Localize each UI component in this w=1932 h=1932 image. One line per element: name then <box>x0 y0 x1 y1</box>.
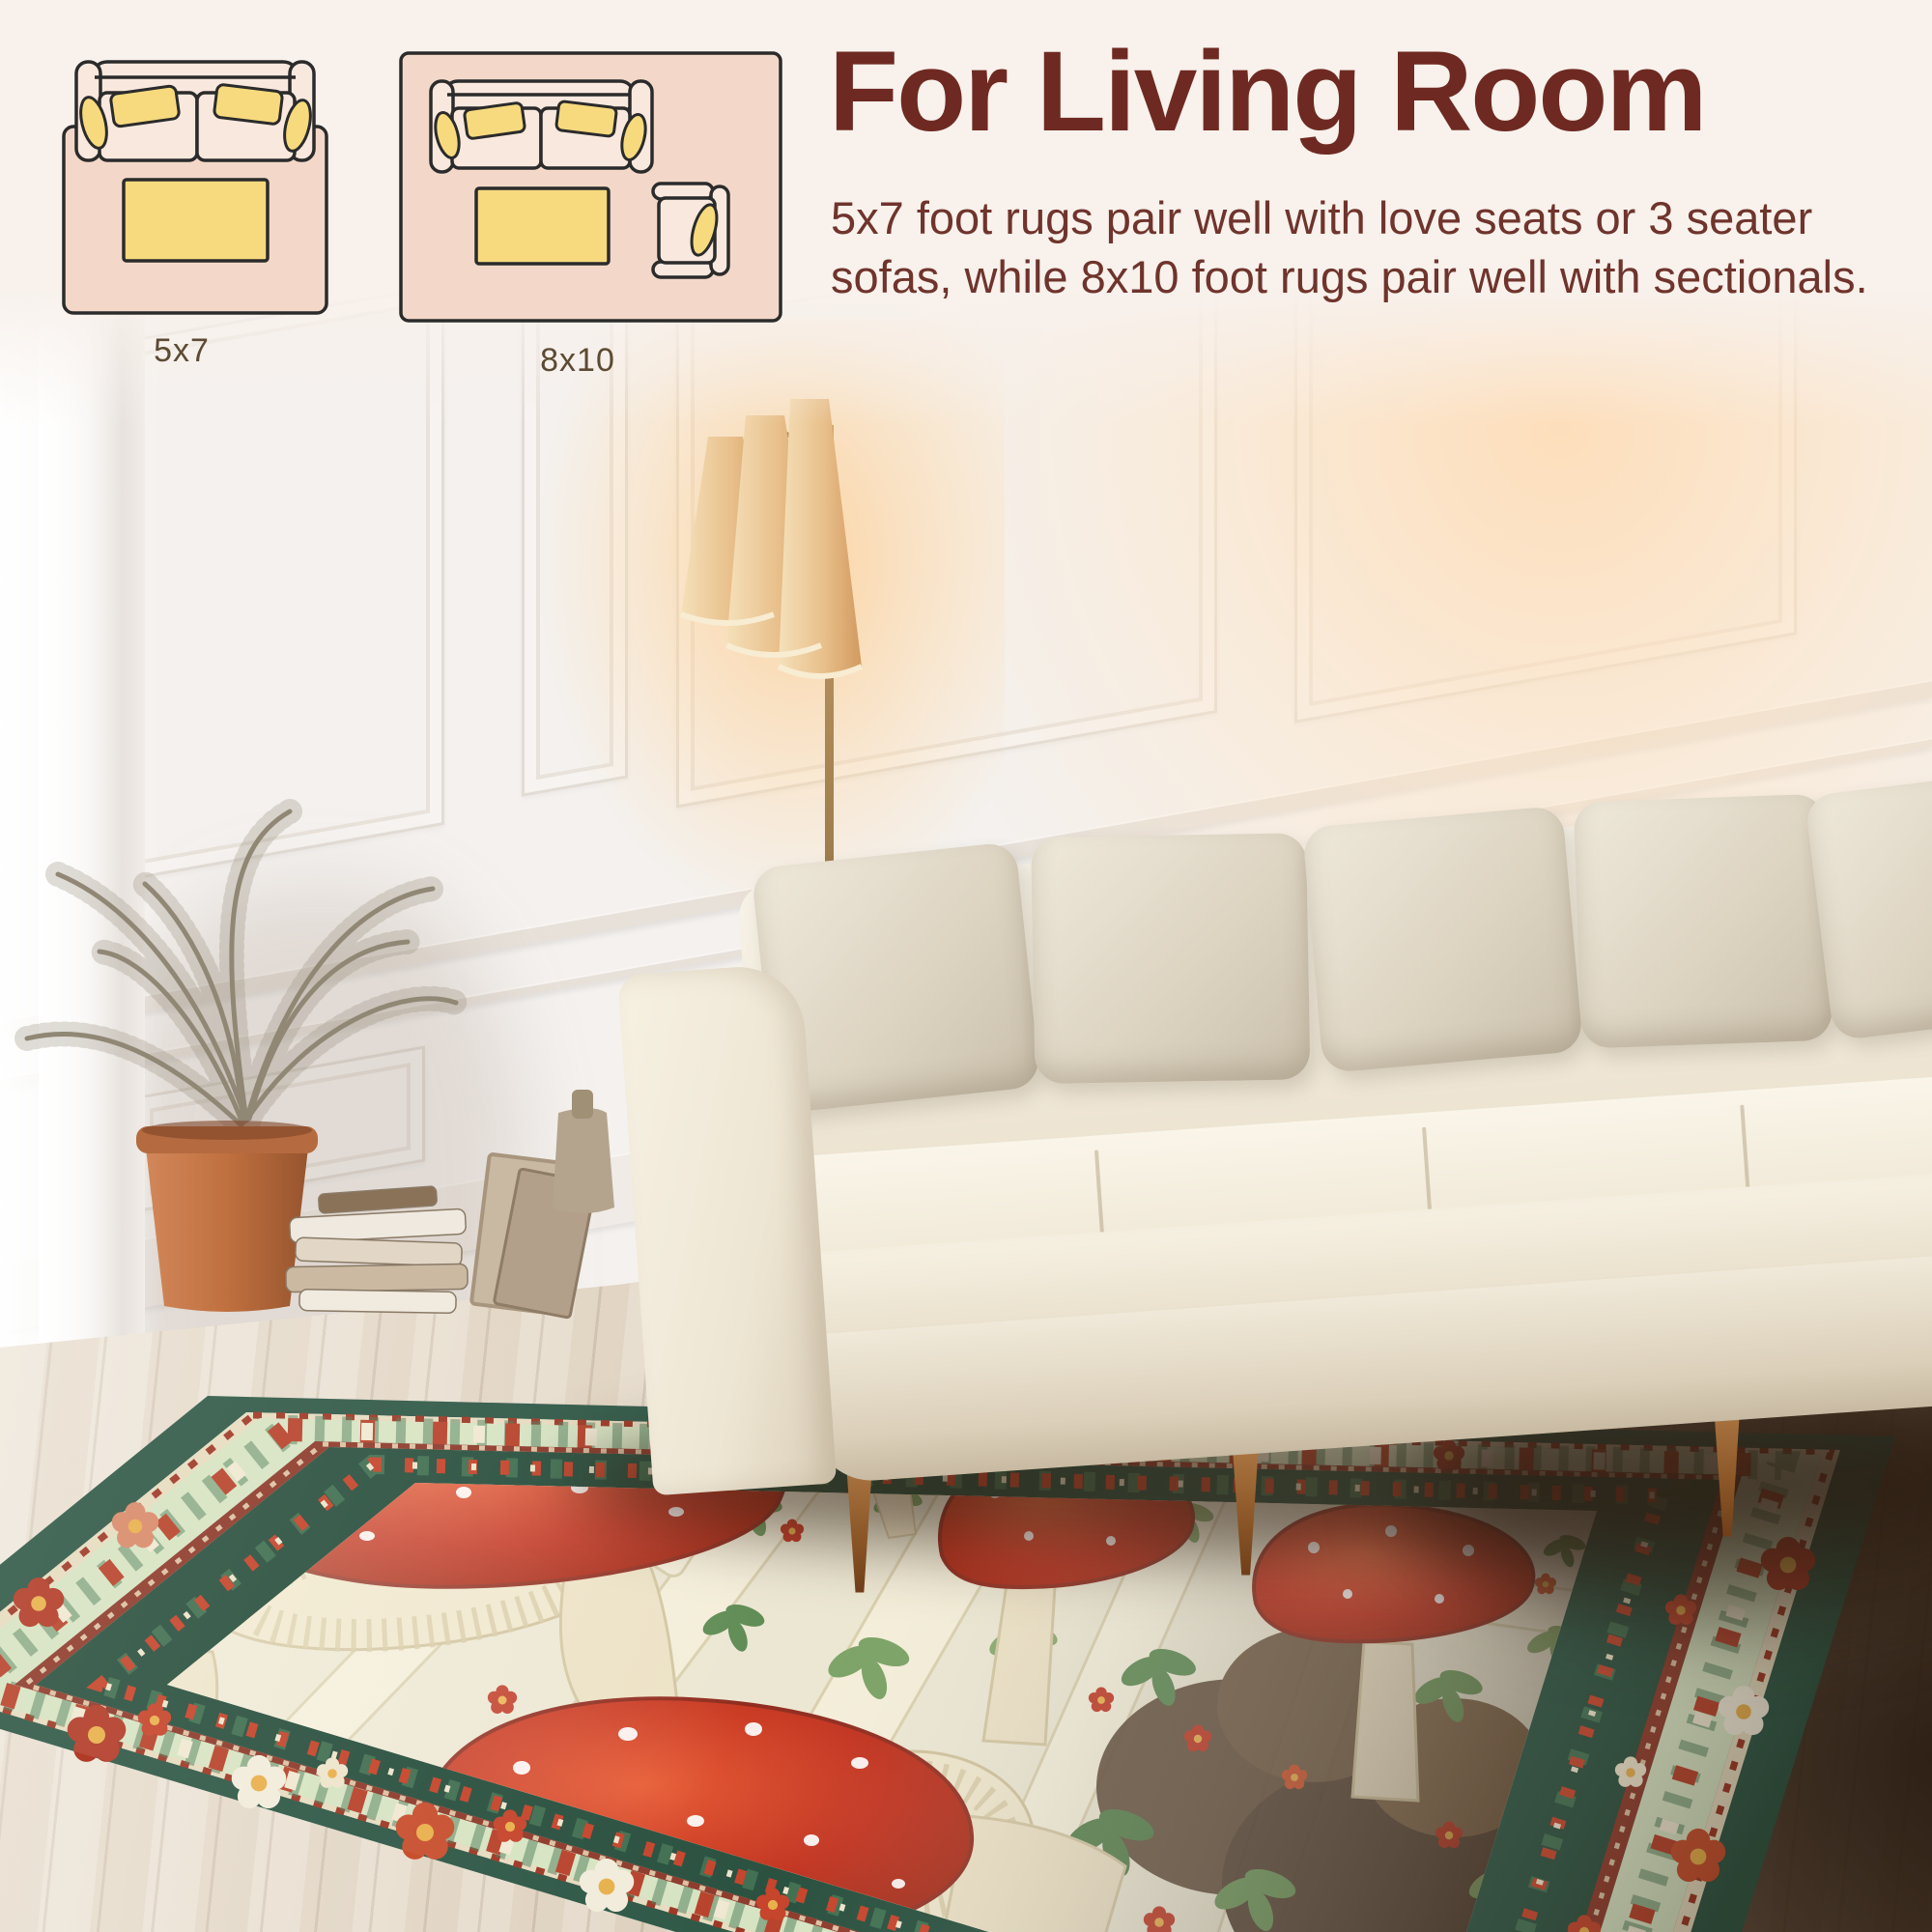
sofa-pillow <box>1574 794 1833 1049</box>
sofa-leg <box>840 1463 879 1593</box>
size-guide-description: 5x7 foot rugs pair well with love seats … <box>831 189 1918 306</box>
sofa-leg <box>1226 1445 1264 1576</box>
armchair-icon <box>653 184 728 277</box>
sofa-leg <box>1708 1406 1747 1537</box>
size-label-5x7: 5x7 <box>114 332 249 370</box>
white-sofa <box>609 752 1932 1650</box>
layout-diagram-5x7 <box>64 62 327 313</box>
sofa-pillow <box>1302 806 1583 1074</box>
product-size-guide-image: 5x7 8x10 For Living Room 5x7 foot rugs p… <box>0 0 1932 1932</box>
layout-diagram-8x10 <box>401 53 781 321</box>
rug-size-diagrams <box>0 0 802 333</box>
page-title: For Living Room <box>829 33 1911 153</box>
size-label-8x10: 8x10 <box>510 342 645 380</box>
sofa-pillow <box>1031 833 1310 1084</box>
sofa-arm <box>617 962 837 1495</box>
